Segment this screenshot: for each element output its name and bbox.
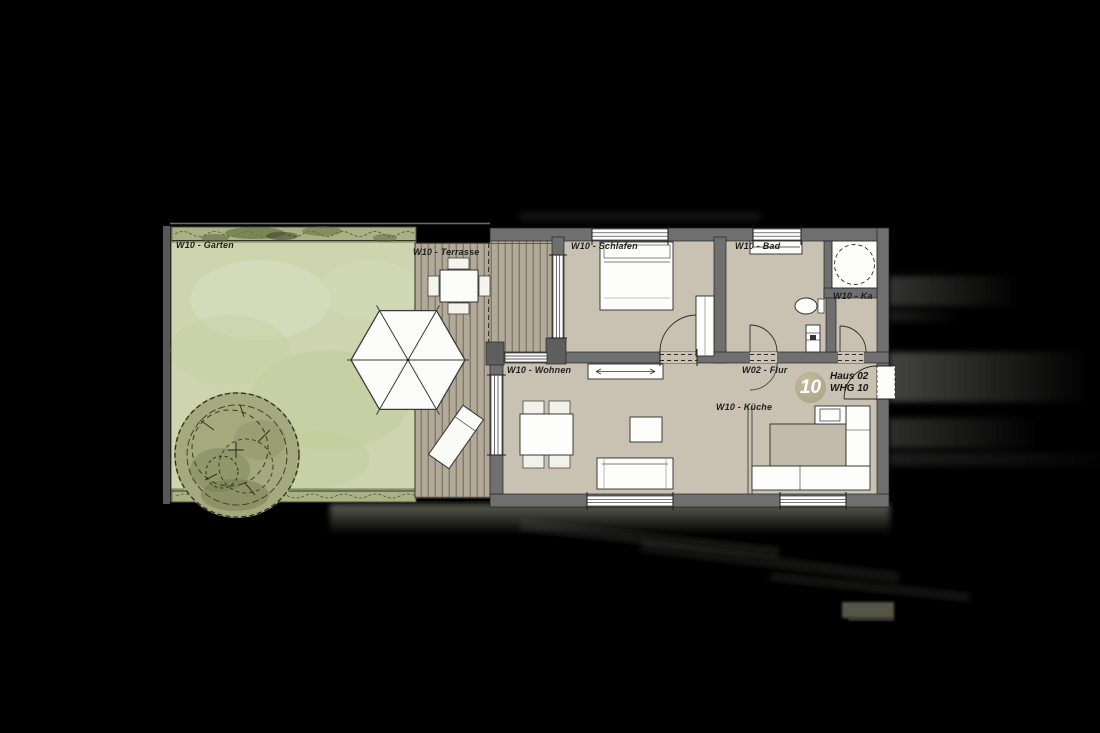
room-label-bad: W10 - Bad <box>735 241 780 251</box>
unit-house: Haus 02 <box>830 371 868 383</box>
toilet <box>795 298 824 314</box>
kitchen-island <box>770 424 846 466</box>
room-label-terrasse: W10 - Terrasse <box>413 247 480 257</box>
bed <box>600 242 673 310</box>
window-kitchen-bottom <box>780 496 846 506</box>
window-living-bottom <box>587 496 673 506</box>
room-label-wohnen: W10 - Wohnen <box>507 365 571 375</box>
window-loggia <box>505 353 547 362</box>
sofa <box>597 458 673 489</box>
wardrobe <box>696 296 714 356</box>
entrance-door <box>877 366 895 399</box>
terrace-door-living <box>491 375 502 455</box>
dining-table <box>520 414 573 455</box>
window-bath-top <box>753 229 801 240</box>
counter-bottom <box>752 466 870 490</box>
unit-info: Haus 02 WHG 10 <box>830 371 868 394</box>
room-label-kueche: W10 - Küche <box>716 402 772 412</box>
shower <box>832 241 877 288</box>
counter-right <box>846 406 870 466</box>
sideboard <box>588 364 663 379</box>
shadow-below-plan <box>330 504 970 621</box>
unit-number-badge: 10 <box>795 372 826 403</box>
coffee-table <box>630 417 662 442</box>
floorplan-canvas: W10 - Garten W10 - Terrasse W10 - Schlaf… <box>0 0 1100 733</box>
window-bedroom-left <box>553 255 563 338</box>
window-bedroom-top <box>592 229 668 240</box>
room-label-flur: W02 - Flur <box>742 365 788 375</box>
unit-apartment: WHG 10 <box>830 383 868 395</box>
room-label-schlafen: W10 - Schlafen <box>571 241 638 251</box>
room-label-kammer: W10 - Ka <box>833 291 877 301</box>
room-label-garten: W10 - Garten <box>176 240 234 250</box>
radiator <box>806 325 820 352</box>
unit-number: 10 <box>800 377 821 399</box>
